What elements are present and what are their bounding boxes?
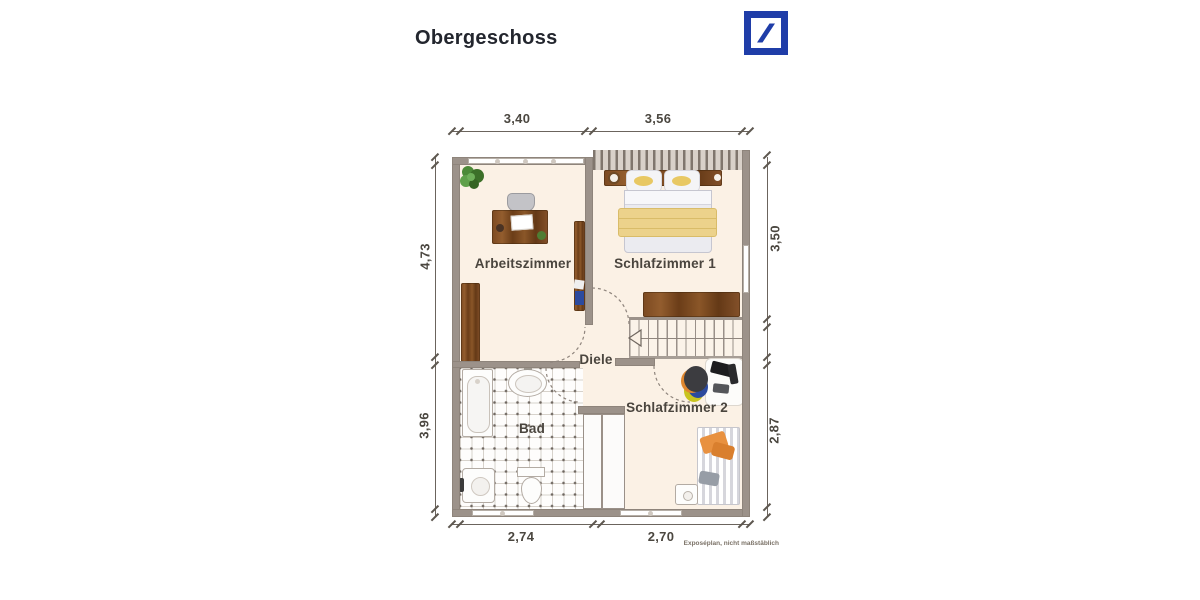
plan-footnote: Exposéplan, nicht maßstäblich	[599, 540, 779, 547]
plan-overlay	[0, 0, 1200, 600]
dimension-line-left	[435, 157, 436, 517]
room-label-schlafzimmer2: Schlafzimmer 2	[617, 400, 737, 415]
door-arc-bad	[546, 368, 580, 402]
dim-label-right-bottom: 2,87	[767, 401, 782, 461]
dim-label-right-top: 3,50	[768, 209, 783, 269]
dim-label-top-right: 3,56	[608, 111, 708, 126]
dimension-line-top	[452, 131, 750, 132]
door-arc-schlafzimmer2	[654, 366, 690, 402]
dim-label-top-left: 3,40	[467, 111, 567, 126]
room-label-diele: Diele	[574, 352, 618, 367]
room-label-arbeitszimmer: Arbeitszimmer	[463, 256, 583, 271]
dim-label-bottom-left: 2,74	[471, 529, 571, 544]
door-arcs	[546, 288, 690, 402]
stair-direction-arrow	[629, 330, 641, 346]
plant-icon	[460, 166, 484, 189]
dim-label-left-top: 4,73	[418, 227, 433, 287]
dim-label-left-bottom: 3,96	[417, 396, 432, 456]
floorplan-page: { "header": { "title": "Obergeschoss" },…	[0, 0, 1200, 600]
deutsche-bank-logo	[744, 11, 788, 55]
page-title: Obergeschoss	[415, 27, 558, 50]
room-label-bad: Bad	[502, 421, 562, 436]
room-label-schlafzimmer1: Schlafzimmer 1	[605, 256, 725, 271]
door-arc-schlafzimmer1	[592, 288, 629, 325]
